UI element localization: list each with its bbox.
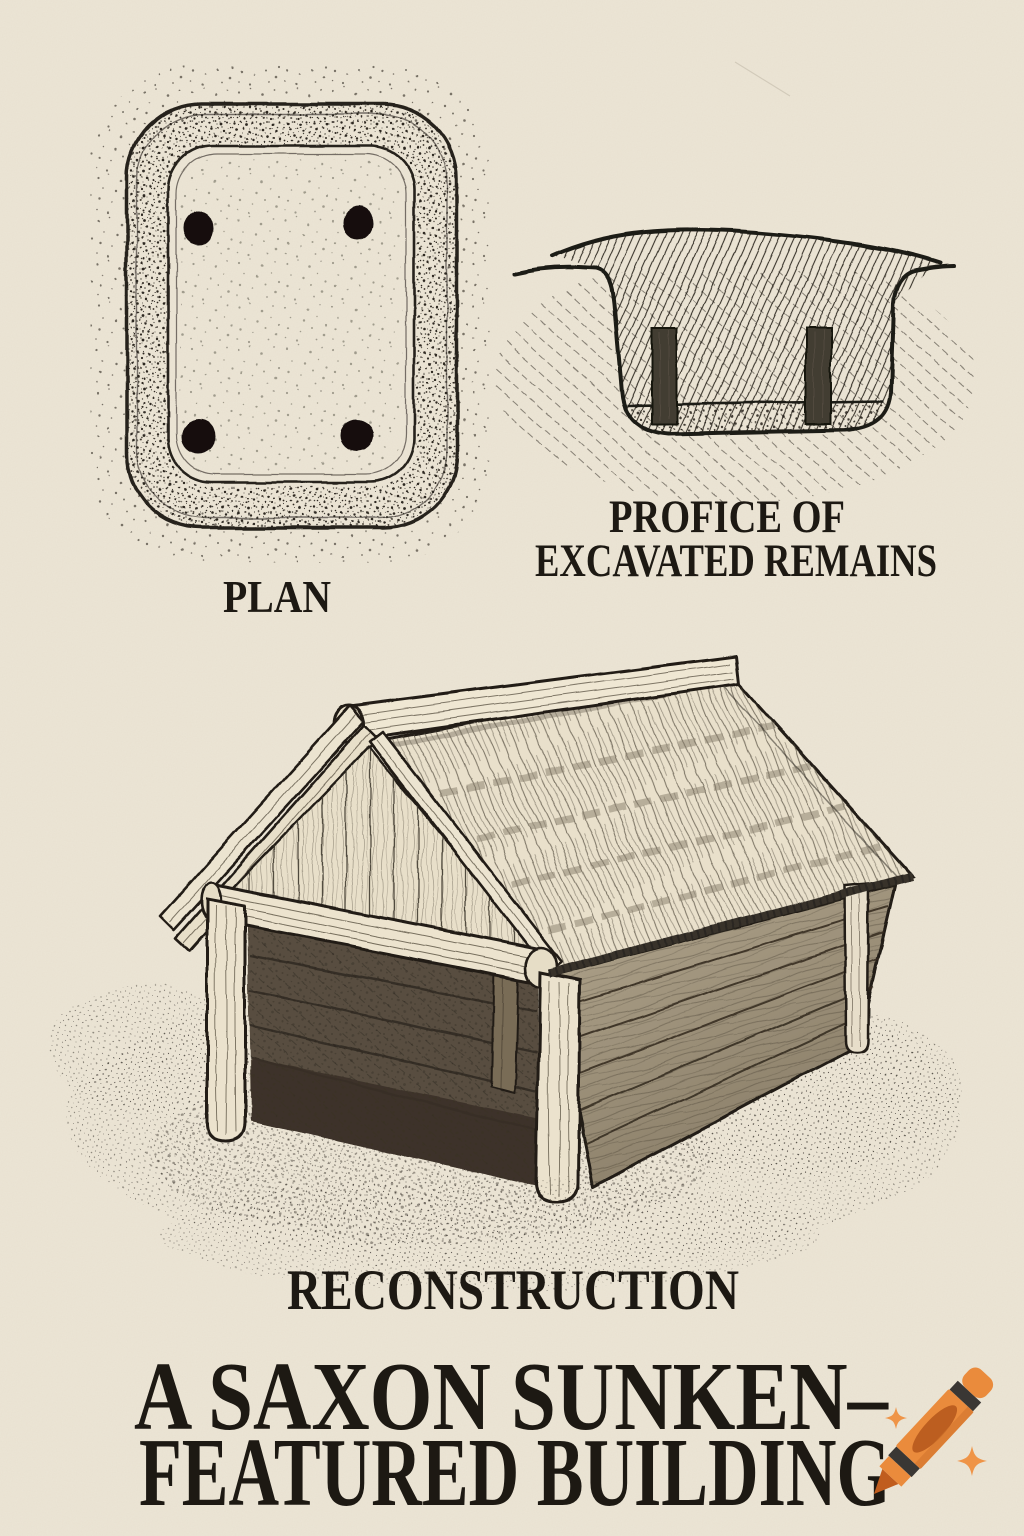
plan-posthole-dot bbox=[343, 207, 373, 239]
hut-front-right-post bbox=[536, 972, 580, 1201]
plan-drawing bbox=[112, 92, 468, 536]
title-line2: FEATURED BUILDING bbox=[139, 1419, 891, 1526]
plan-posthole-dot bbox=[340, 419, 374, 451]
illustration-canvas: PLAN PROFICE OF EXCAVATED REMAINS RECONS… bbox=[0, 0, 1024, 1536]
plan-interior bbox=[180, 158, 402, 470]
illustration-page: PLAN PROFICE OF EXCAVATED REMAINS RECONS… bbox=[0, 0, 1024, 1536]
profile-post-left bbox=[652, 328, 677, 424]
profile-post-right bbox=[806, 328, 831, 424]
profile-label-line2: EXCAVATED REMAINS bbox=[535, 535, 937, 587]
plan-posthole-dot bbox=[183, 211, 213, 245]
plan-posthole-dot bbox=[181, 419, 215, 453]
hut-rear-right-post bbox=[845, 884, 869, 1052]
reconstruction-label: RECONSTRUCTION bbox=[287, 1259, 739, 1322]
plan-label: PLAN bbox=[223, 571, 331, 622]
